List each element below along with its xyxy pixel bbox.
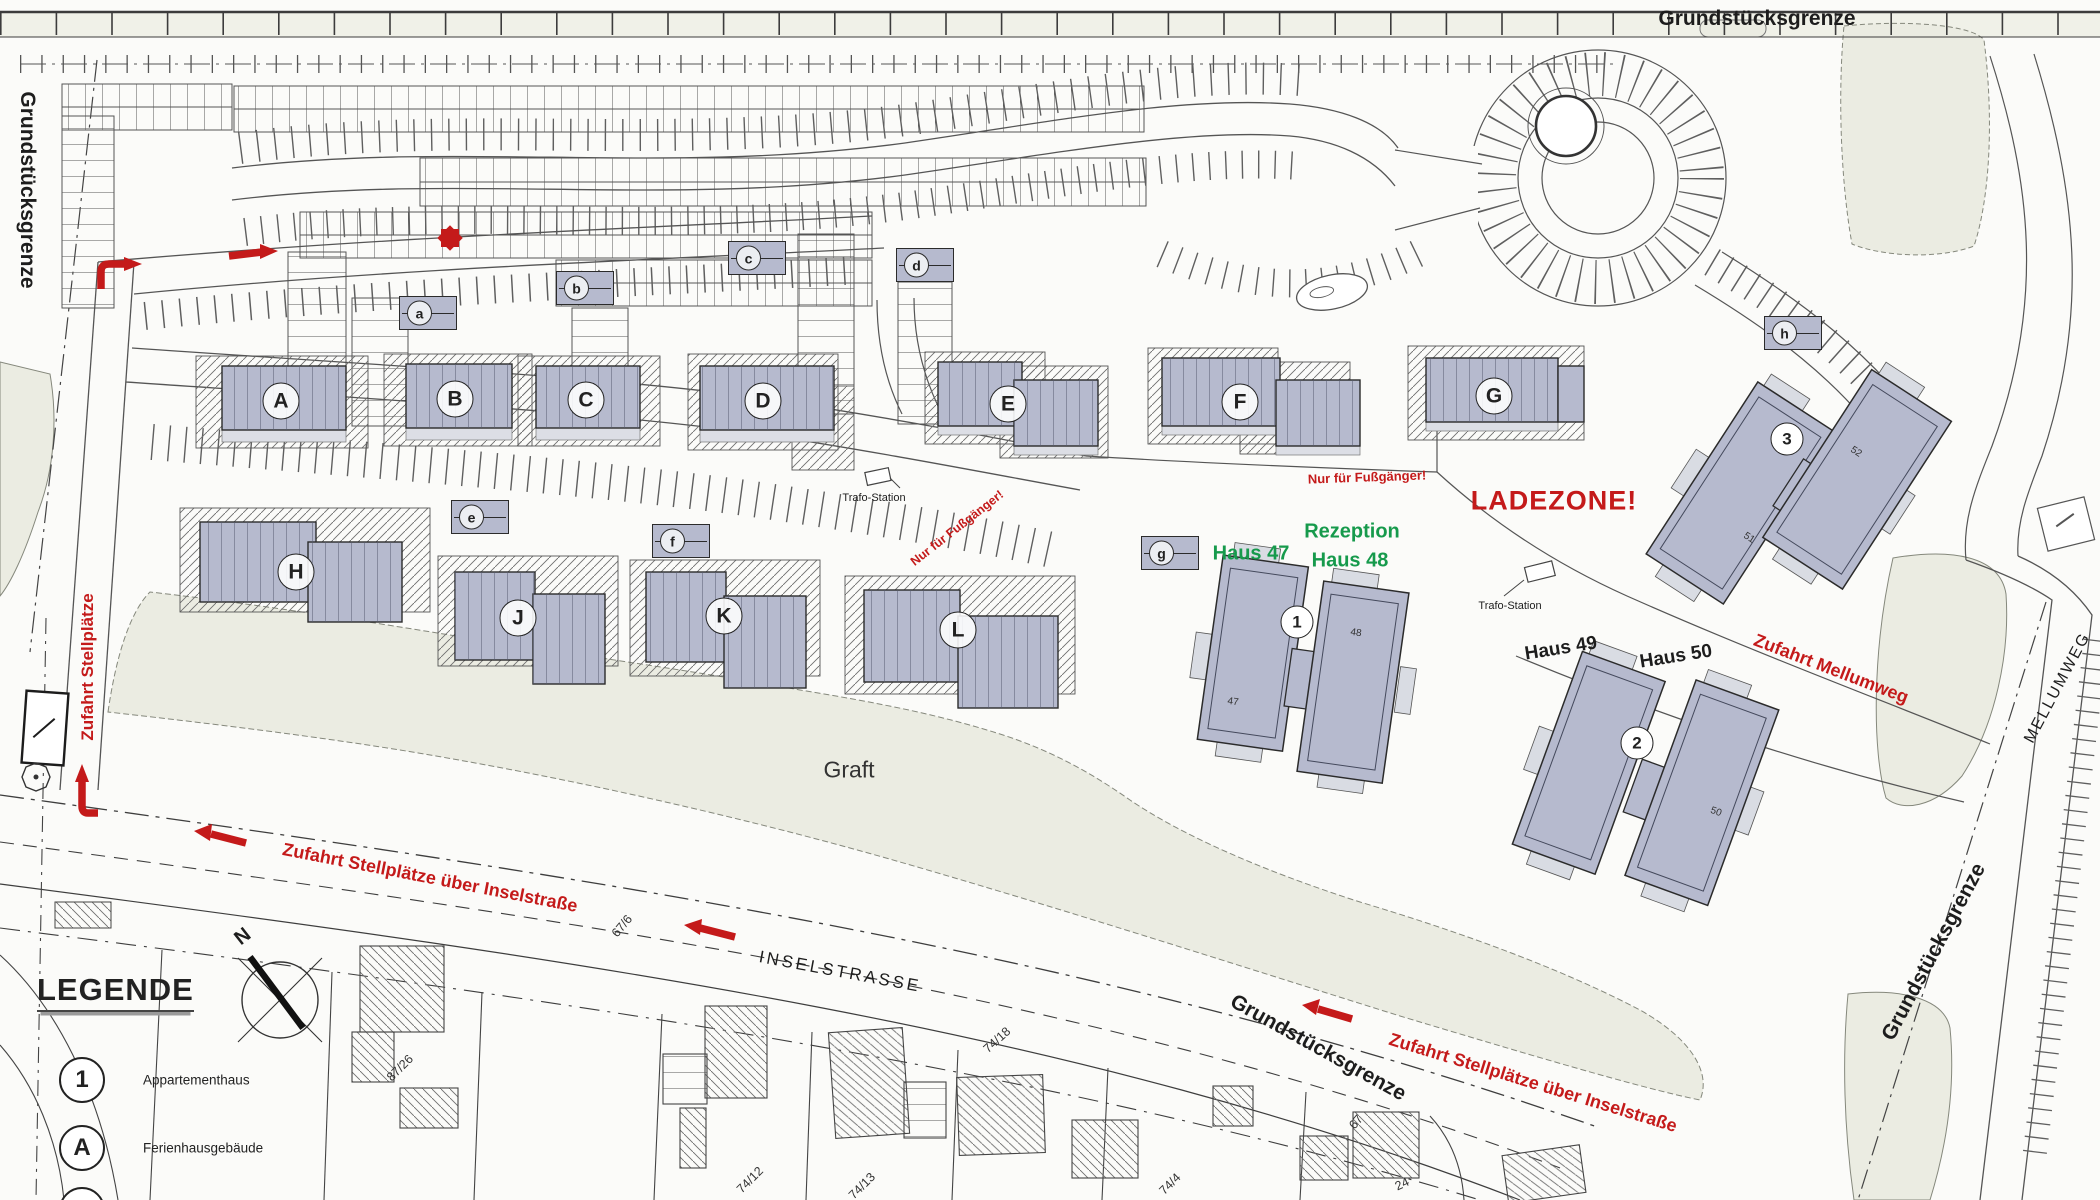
- building-circle-f: F: [1222, 384, 1259, 421]
- label-trafo-station-1: Trafo-Station: [842, 492, 905, 504]
- building-circle-k: K: [706, 598, 743, 635]
- legend-label-apartment: Appartementhaus: [143, 1073, 250, 1088]
- label-haus-48: Haus 48: [1312, 550, 1389, 573]
- building-circle-b: B: [437, 381, 474, 418]
- building-circle-g: G: [1476, 378, 1513, 415]
- building-circle-d: D: [745, 383, 782, 420]
- boundary-label-top: Grundstücksgrenze: [1658, 7, 1855, 31]
- legend-symbol-ferienhaus: A: [59, 1125, 105, 1171]
- marker-e: e: [451, 500, 509, 534]
- legend-symbol-apartment: 1: [59, 1057, 105, 1103]
- label-haus-47: Haus 47: [1213, 543, 1290, 566]
- building-circle-e: E: [990, 386, 1027, 423]
- unit-number-48: 48: [1350, 627, 1363, 639]
- building-circle-a: A: [263, 383, 300, 420]
- marker-a: a: [399, 296, 457, 330]
- building-circle-l: L: [940, 612, 977, 649]
- marker-h: h: [1764, 316, 1822, 350]
- note-ladezone: LADEZONE!: [1471, 486, 1638, 517]
- marker-b: b: [556, 271, 614, 305]
- building-circle-h: H: [278, 554, 315, 591]
- marker-g: g: [1141, 536, 1199, 570]
- label-trafo-station-2: Trafo-Station: [1478, 600, 1541, 612]
- note-zufahrt-stellplaetze: Zufahrt Stellplätze: [78, 593, 98, 740]
- building-circle-c: C: [568, 382, 605, 419]
- building-circle-j: J: [500, 600, 537, 637]
- apartment-circle-1: 1: [1281, 606, 1314, 639]
- unit-number-47: 47: [1227, 696, 1240, 708]
- legend-label-ferienhaus: Ferienhausgebäude: [143, 1141, 263, 1156]
- apartment-circle-3: 3: [1771, 423, 1804, 456]
- label-rezeption: Rezeption: [1304, 521, 1400, 544]
- site-plan: Grundstücksgrenze Grundstücksgrenze Grun…: [0, 0, 2100, 1200]
- area-label-graft: Graft: [823, 757, 874, 784]
- marker-c: c: [728, 241, 786, 275]
- boundary-label-left: Grundstücksgrenze: [15, 91, 39, 288]
- marker-f: f: [652, 524, 710, 558]
- site-plan-linework: [0, 0, 2100, 1200]
- legend-title: LEGENDE: [37, 972, 194, 1012]
- marker-d: d: [896, 248, 954, 282]
- apartment-circle-2: 2: [1621, 727, 1654, 760]
